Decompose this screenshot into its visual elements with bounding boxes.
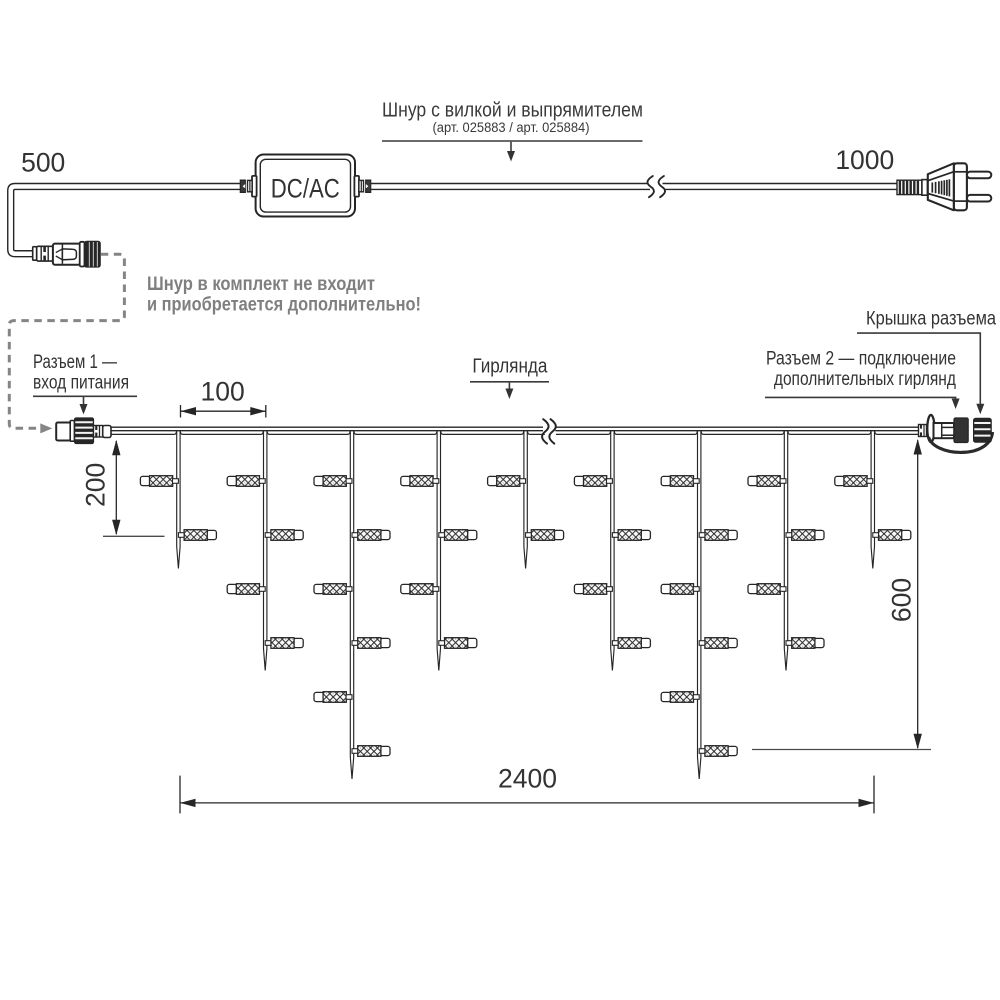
svg-text:Разъем 2 — подключение: Разъем 2 — подключение [766,348,956,369]
svg-text:200: 200 [80,463,110,507]
svg-text:1000: 1000 [835,145,894,175]
svg-text:500: 500 [21,148,65,178]
svg-text:2400: 2400 [498,764,557,794]
svg-text:и приобретается дополнительно!: и приобретается дополнительно! [147,294,421,316]
svg-text:DC/AC: DC/AC [271,173,340,203]
svg-text:Крышка разъема: Крышка разъема [866,308,996,329]
svg-text:Разъем 1 —: Разъем 1 — [33,352,117,373]
svg-text:дополнительных гирлянд: дополнительных гирлянд [774,369,956,390]
svg-text:100: 100 [200,376,244,406]
svg-text:600: 600 [887,578,917,622]
svg-text:Шнур в комплект не входит: Шнур в комплект не входит [147,273,375,295]
svg-text:вход питания: вход питания [33,372,129,393]
svg-text:Гирлянда: Гирлянда [472,355,548,377]
svg-text:Шнур с вилкой и выпрямителем: Шнур с вилкой и выпрямителем [382,99,643,122]
svg-text:(арт. 025883 / арт. 025884): (арт. 025883 / арт. 025884) [433,120,590,136]
